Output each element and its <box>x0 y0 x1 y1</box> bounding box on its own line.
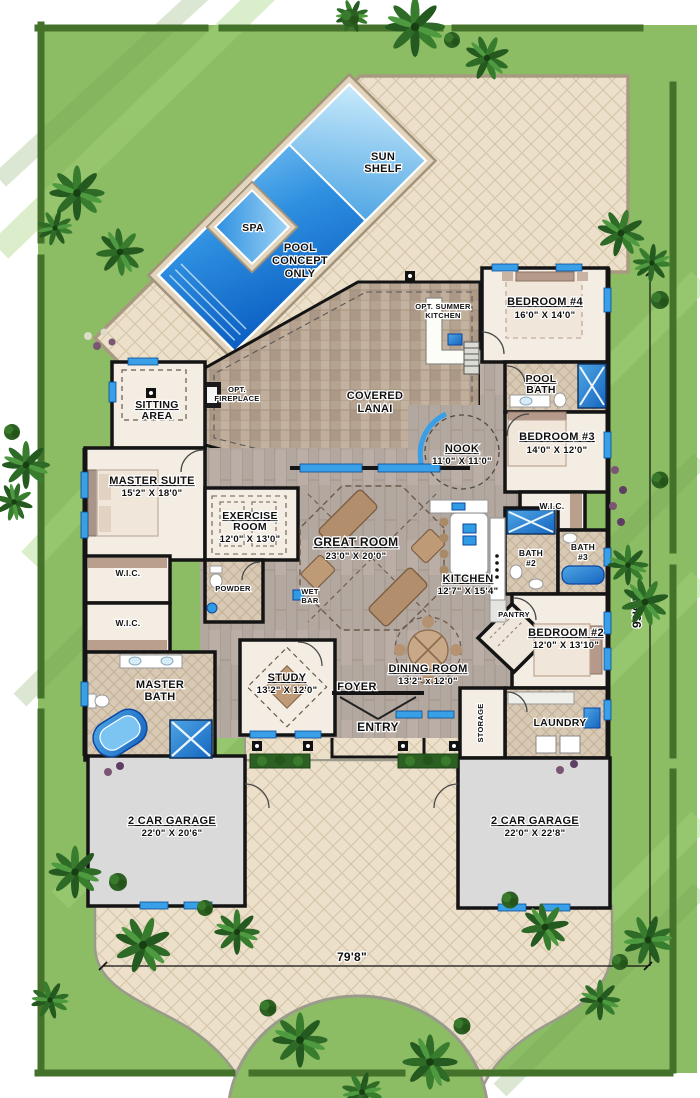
dimension-width: 79'8" <box>337 950 367 964</box>
svg-text:ROOM: ROOM <box>233 521 267 533</box>
bush <box>444 32 460 48</box>
summer-kitchen-grill <box>448 334 462 345</box>
palm-tree <box>580 980 621 1021</box>
svg-text:BAR: BAR <box>301 596 318 605</box>
motor-court <box>245 760 458 908</box>
label-great-room: GREAT ROOM <box>314 535 399 549</box>
palm-tree <box>272 1012 327 1067</box>
bush <box>341 9 359 27</box>
svg-text:KITCHEN: KITCHEN <box>425 311 460 320</box>
label-spa: SPA <box>242 222 264 234</box>
svg-text:14'0" X 12'0": 14'0" X 12'0" <box>527 445 588 456</box>
svg-text:BATH: BATH <box>526 384 556 396</box>
label-dining: DINING ROOM <box>388 663 467 675</box>
bush <box>651 291 669 309</box>
bush <box>502 892 519 909</box>
svg-text:12'0" X 13'0": 12'0" X 13'0" <box>220 534 281 545</box>
master-shower <box>170 720 212 758</box>
pool-bath-shower <box>578 364 606 408</box>
label-bedroom3: BEDROOM #3 <box>519 431 595 443</box>
floor-plan-page: SUN SHELF SPA POOL CONCEPT ONLY OPT. SUM… <box>0 0 700 1098</box>
svg-text:LANAI: LANAI <box>357 403 392 415</box>
bush <box>260 1000 277 1017</box>
label-pool-concept: POOL <box>284 242 316 254</box>
palm-tree <box>2 441 50 489</box>
label-wet-bar: WET <box>301 587 319 596</box>
svg-text:AREA: AREA <box>142 410 173 422</box>
label-lanai: COVERED <box>347 390 404 402</box>
bush <box>612 954 628 970</box>
label-nook: NOOK <box>445 443 479 455</box>
label-sun-shelf: SUN <box>371 151 395 163</box>
label-pantry: PANTRY <box>498 610 530 619</box>
palm-tree <box>608 545 649 586</box>
bush <box>4 424 20 440</box>
svg-text:BATH: BATH <box>145 691 176 703</box>
label-laundry: LAUNDRY <box>533 717 586 729</box>
svg-text:FIREPLACE: FIREPLACE <box>214 394 259 403</box>
svg-text:12'0" X 13'10": 12'0" X 13'10" <box>533 640 599 651</box>
bush <box>652 472 669 489</box>
label-kitchen: KITCHEN <box>443 573 494 585</box>
label-foyer: FOYER <box>337 681 376 693</box>
svg-text:SHELF: SHELF <box>364 163 402 175</box>
svg-text:#3: #3 <box>578 552 588 562</box>
label-master-bath: MASTER <box>136 679 184 691</box>
label-study: STUDY <box>268 672 307 684</box>
label-bath3: BATH <box>571 542 595 552</box>
bush <box>109 873 127 891</box>
label-bath2: BATH <box>519 548 543 558</box>
svg-text:ONLY: ONLY <box>285 268 316 280</box>
bush <box>454 1018 471 1035</box>
svg-text:CONCEPT: CONCEPT <box>272 255 328 267</box>
label-summer-kitchen: OPT. SUMMER <box>415 302 471 311</box>
label-garage-right: 2 CAR GARAGE <box>491 815 579 827</box>
floor-plan-drawing: SUN SHELF SPA POOL CONCEPT ONLY OPT. SUM… <box>0 0 700 1098</box>
label-entry: ENTRY <box>357 720 399 734</box>
bath3-tub <box>562 566 604 584</box>
label-wic-right: W.I.C. <box>540 501 565 511</box>
bush <box>197 900 213 916</box>
svg-text:23'0" X 20'0": 23'0" X 20'0" <box>326 551 387 562</box>
palm-tree <box>214 909 260 955</box>
svg-text:13'2" X 12'0": 13'2" X 12'0" <box>257 685 318 696</box>
palm-tree <box>49 846 102 899</box>
label-bedroom2: BEDROOM #2 <box>528 627 604 639</box>
svg-text:22'0" X 20'6": 22'0" X 20'6" <box>142 828 203 839</box>
label-master-suite: MASTER SUITE <box>109 475 195 487</box>
svg-text:#2: #2 <box>526 558 536 568</box>
label-wic-2: W.I.C. <box>116 618 141 628</box>
label-powder: POWDER <box>215 584 251 593</box>
bath2-shower <box>507 510 555 534</box>
svg-text:22'0" X 22'8": 22'0" X 22'8" <box>505 828 566 839</box>
label-wic-1: W.I.C. <box>116 568 141 578</box>
label-fireplace: OPT. <box>228 385 246 394</box>
lanai-stairs <box>464 342 479 374</box>
svg-text:16'0" X 14'0": 16'0" X 14'0" <box>515 310 576 321</box>
label-storage: STORAGE <box>476 703 485 742</box>
svg-text:15'2" X 18'0": 15'2" X 18'0" <box>122 488 183 499</box>
svg-text:12'7" X 15'4": 12'7" X 15'4" <box>438 586 499 597</box>
label-garage-left: 2 CAR GARAGE <box>128 815 216 827</box>
svg-text:11'0" X 11'0": 11'0" X 11'0" <box>432 456 492 467</box>
palm-tree <box>0 476 40 528</box>
svg-text:13'2" x 12'0": 13'2" x 12'0" <box>398 676 458 687</box>
label-bedroom4: BEDROOM #4 <box>507 296 583 308</box>
